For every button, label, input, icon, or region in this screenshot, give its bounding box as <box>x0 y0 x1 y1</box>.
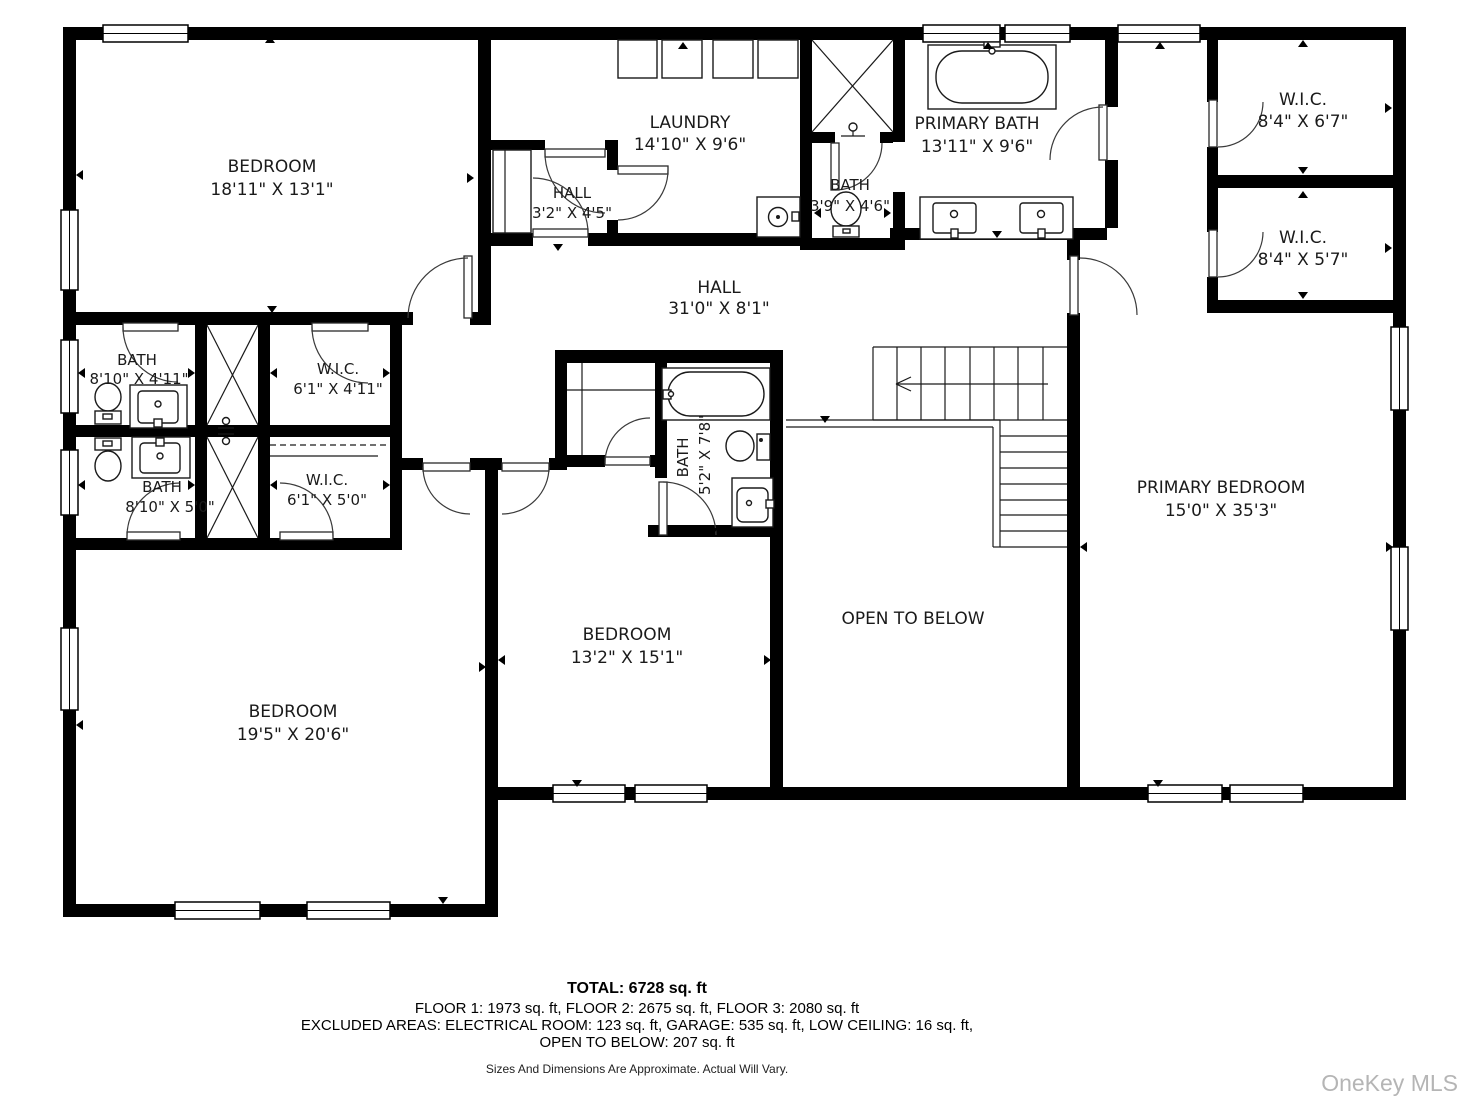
left-lower-bath-fixtures-icon <box>95 437 190 481</box>
room-dims-bath-left-lower: 8'10" X 5'0" <box>125 498 215 516</box>
watermark-onekey-mls: OneKey MLS <box>1321 1070 1458 1096</box>
laundry-sink-icon <box>757 197 800 237</box>
primary-bath-tub-icon <box>928 42 1056 109</box>
room-dims-bath-left-upper: 8'10" X 4'11" <box>89 370 188 388</box>
footer-open-to-below: OPEN TO BELOW: 207 sq. ft <box>539 1034 735 1051</box>
footer-summary: TOTAL: 6728 sq. ft FLOOR 1: 1973 sq. ft,… <box>301 980 973 1076</box>
room-label-wic-left-upper: W.I.C. <box>317 360 359 378</box>
room-label-hall-main: HALL <box>697 278 741 298</box>
room-dims-primary-bath: 13'11" X 9'6" <box>921 137 1033 157</box>
left-upper-bath-fixtures-icon <box>95 383 187 428</box>
room-dims-wic-top: 8'4" X 6'7" <box>1258 112 1349 132</box>
room-label-bath-small: BATH <box>830 176 870 194</box>
room-dims-hall-small: 3'2" X 4'5" <box>532 204 612 222</box>
footer-disclaimer: Sizes And Dimensions Are Approximate. Ac… <box>486 1062 788 1076</box>
room-label-laundry: LAUNDRY <box>650 113 731 133</box>
footer-floors: FLOOR 1: 1973 sq. ft, FLOOR 2: 2675 sq. … <box>415 1000 860 1017</box>
room-dims-wic-bottom: 8'4" X 5'7" <box>1258 250 1349 270</box>
room-label-bath-left-lower: BATH <box>142 478 182 496</box>
laundry-cabinets-icon <box>618 40 798 78</box>
room-label-bedroom-bl: BEDROOM <box>249 702 338 722</box>
room-label-wic-left-lower: W.I.C. <box>306 471 348 489</box>
room-label-wic-top: W.I.C. <box>1279 90 1327 110</box>
floor-plan-drawing: BEDROOM 18'11" X 13'1" LAUNDRY 14'10" X … <box>0 0 1467 1100</box>
room-dims-bath-small: 3'9" X 4'6" <box>810 197 890 215</box>
staircase <box>786 347 1067 547</box>
shower-top-icon <box>812 40 893 136</box>
room-dims-bedroom-bl: 19'5" X 20'6" <box>237 725 349 745</box>
room-dims-bedroom-tl: 18'11" X 13'1" <box>210 180 333 200</box>
room-label-bath-middle: BATH 5'2" X 7'8" <box>674 415 714 495</box>
room-label-bath-left-upper: BATH <box>117 351 157 369</box>
room-label-wic-bottom: W.I.C. <box>1279 228 1327 248</box>
room-dims-wic-left-lower: 6'1" X 5'0" <box>287 491 367 509</box>
room-dims-wic-left-upper: 6'1" X 4'11" <box>293 380 383 398</box>
room-label-primary-bedroom: PRIMARY BEDROOM <box>1137 478 1306 498</box>
room-dims-hall-main: 31'0" X 8'1" <box>668 299 770 319</box>
footer-total: TOTAL: 6728 sq. ft <box>567 980 708 997</box>
left-lower-wic-rod-icon <box>270 445 390 456</box>
room-dims-primary-bedroom: 15'0" X 35'3" <box>1165 501 1277 521</box>
room-label-bedroom-tl: BEDROOM <box>228 157 317 177</box>
floor-plan-page: BEDROOM 18'11" X 13'1" LAUNDRY 14'10" X … <box>0 0 1467 1100</box>
footer-excluded: EXCLUDED AREAS: ELECTRICAL ROOM: 123 sq.… <box>301 1017 973 1034</box>
room-label-primary-bath: PRIMARY BATH <box>914 114 1039 134</box>
room-dims-laundry: 14'10" X 9'6" <box>634 135 746 155</box>
room-label-open-to-below: OPEN TO BELOW <box>841 609 984 629</box>
room-label-hall-small: HALL <box>553 184 592 202</box>
room-label-bedroom-middle: BEDROOM <box>583 625 672 645</box>
room-dims-bedroom-middle: 13'2" X 15'1" <box>571 648 683 668</box>
hall-closet-icon <box>493 150 531 233</box>
